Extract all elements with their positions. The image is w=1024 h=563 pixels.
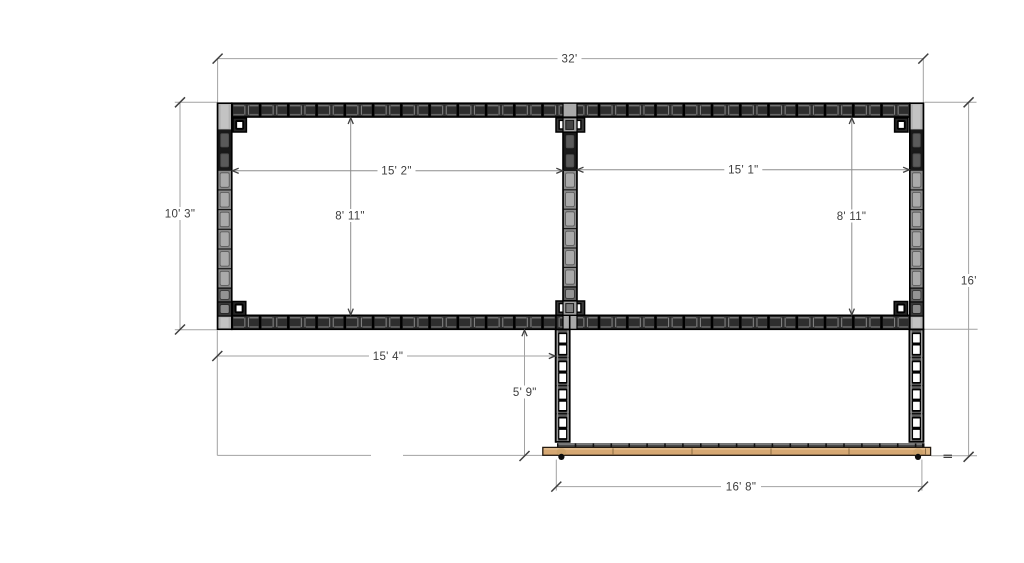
svg-text:16': 16'	[961, 276, 977, 288]
svg-text:15' 4": 15' 4"	[373, 351, 403, 363]
svg-text:8' 11": 8' 11"	[837, 211, 867, 223]
svg-text:16' 8": 16' 8"	[726, 482, 756, 494]
svg-text:5' 9": 5' 9"	[513, 387, 537, 399]
svg-text:8' 11": 8' 11"	[335, 211, 365, 223]
svg-text:10' 3": 10' 3"	[165, 209, 195, 221]
svg-text:15' 2": 15' 2"	[381, 166, 411, 178]
svg-text:15' 1": 15' 1"	[728, 165, 758, 177]
svg-text:32': 32'	[562, 54, 578, 66]
